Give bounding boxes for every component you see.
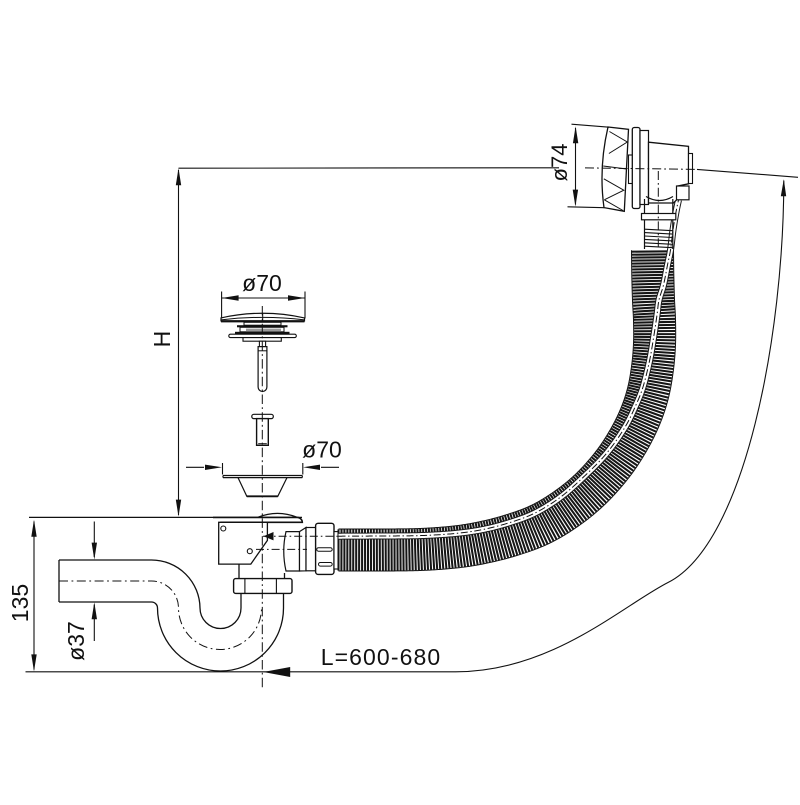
svg-text:135: 135 bbox=[7, 584, 33, 622]
svg-text:L=600-680: L=600-680 bbox=[321, 644, 442, 670]
svg-text:ø70: ø70 bbox=[242, 270, 282, 296]
svg-text:ø37: ø37 bbox=[63, 621, 89, 661]
svg-text:H: H bbox=[149, 331, 175, 348]
svg-text:ø74: ø74 bbox=[547, 144, 572, 182]
svg-text:ø70: ø70 bbox=[302, 437, 342, 463]
